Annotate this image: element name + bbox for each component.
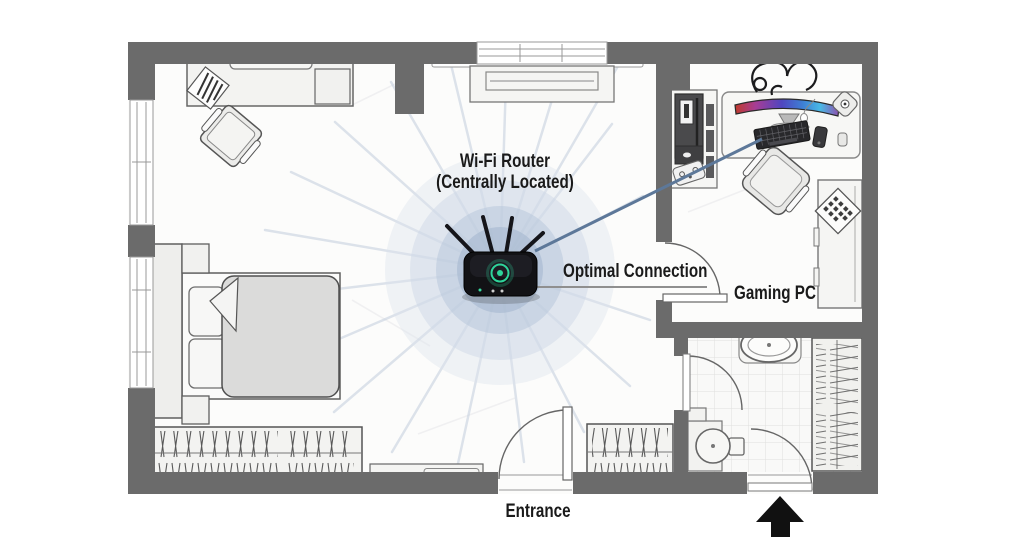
tray bbox=[315, 69, 350, 104]
bottle-icon bbox=[838, 133, 847, 146]
headboard bbox=[152, 244, 182, 418]
nightstand bbox=[182, 396, 209, 424]
rear-door-leaf bbox=[748, 483, 812, 491]
nightstand bbox=[182, 244, 209, 273]
optimal-connection-label: Optimal Connection bbox=[563, 261, 707, 283]
floor-plan-illustration: Wi-Fi Router (Centrally Located) Optimal… bbox=[0, 0, 1024, 559]
wifi-router-label-line1: Wi-Fi Router bbox=[401, 151, 609, 172]
arrow-up-icon bbox=[756, 496, 804, 537]
gaming-door-leaf bbox=[663, 294, 727, 302]
bathroom-door-leaf bbox=[683, 354, 690, 411]
duvet bbox=[222, 276, 339, 397]
toilet-tank bbox=[729, 438, 744, 455]
bathroom bbox=[688, 327, 862, 472]
window-left bbox=[130, 257, 153, 388]
shelf-block bbox=[706, 130, 714, 152]
shelf-block bbox=[706, 104, 714, 126]
floor-plan-canvas bbox=[0, 0, 1024, 559]
wifi-router-label: Wi-Fi Router (Centrally Located) bbox=[401, 151, 609, 193]
gaming-pc-label: Gaming PC bbox=[734, 283, 816, 305]
pillow bbox=[189, 339, 226, 388]
entrance-door-leaf bbox=[563, 407, 572, 480]
window-top bbox=[477, 42, 607, 64]
entrance-label: Entrance bbox=[482, 501, 594, 523]
wifi-router-label-line2: (Centrally Located) bbox=[401, 172, 609, 193]
